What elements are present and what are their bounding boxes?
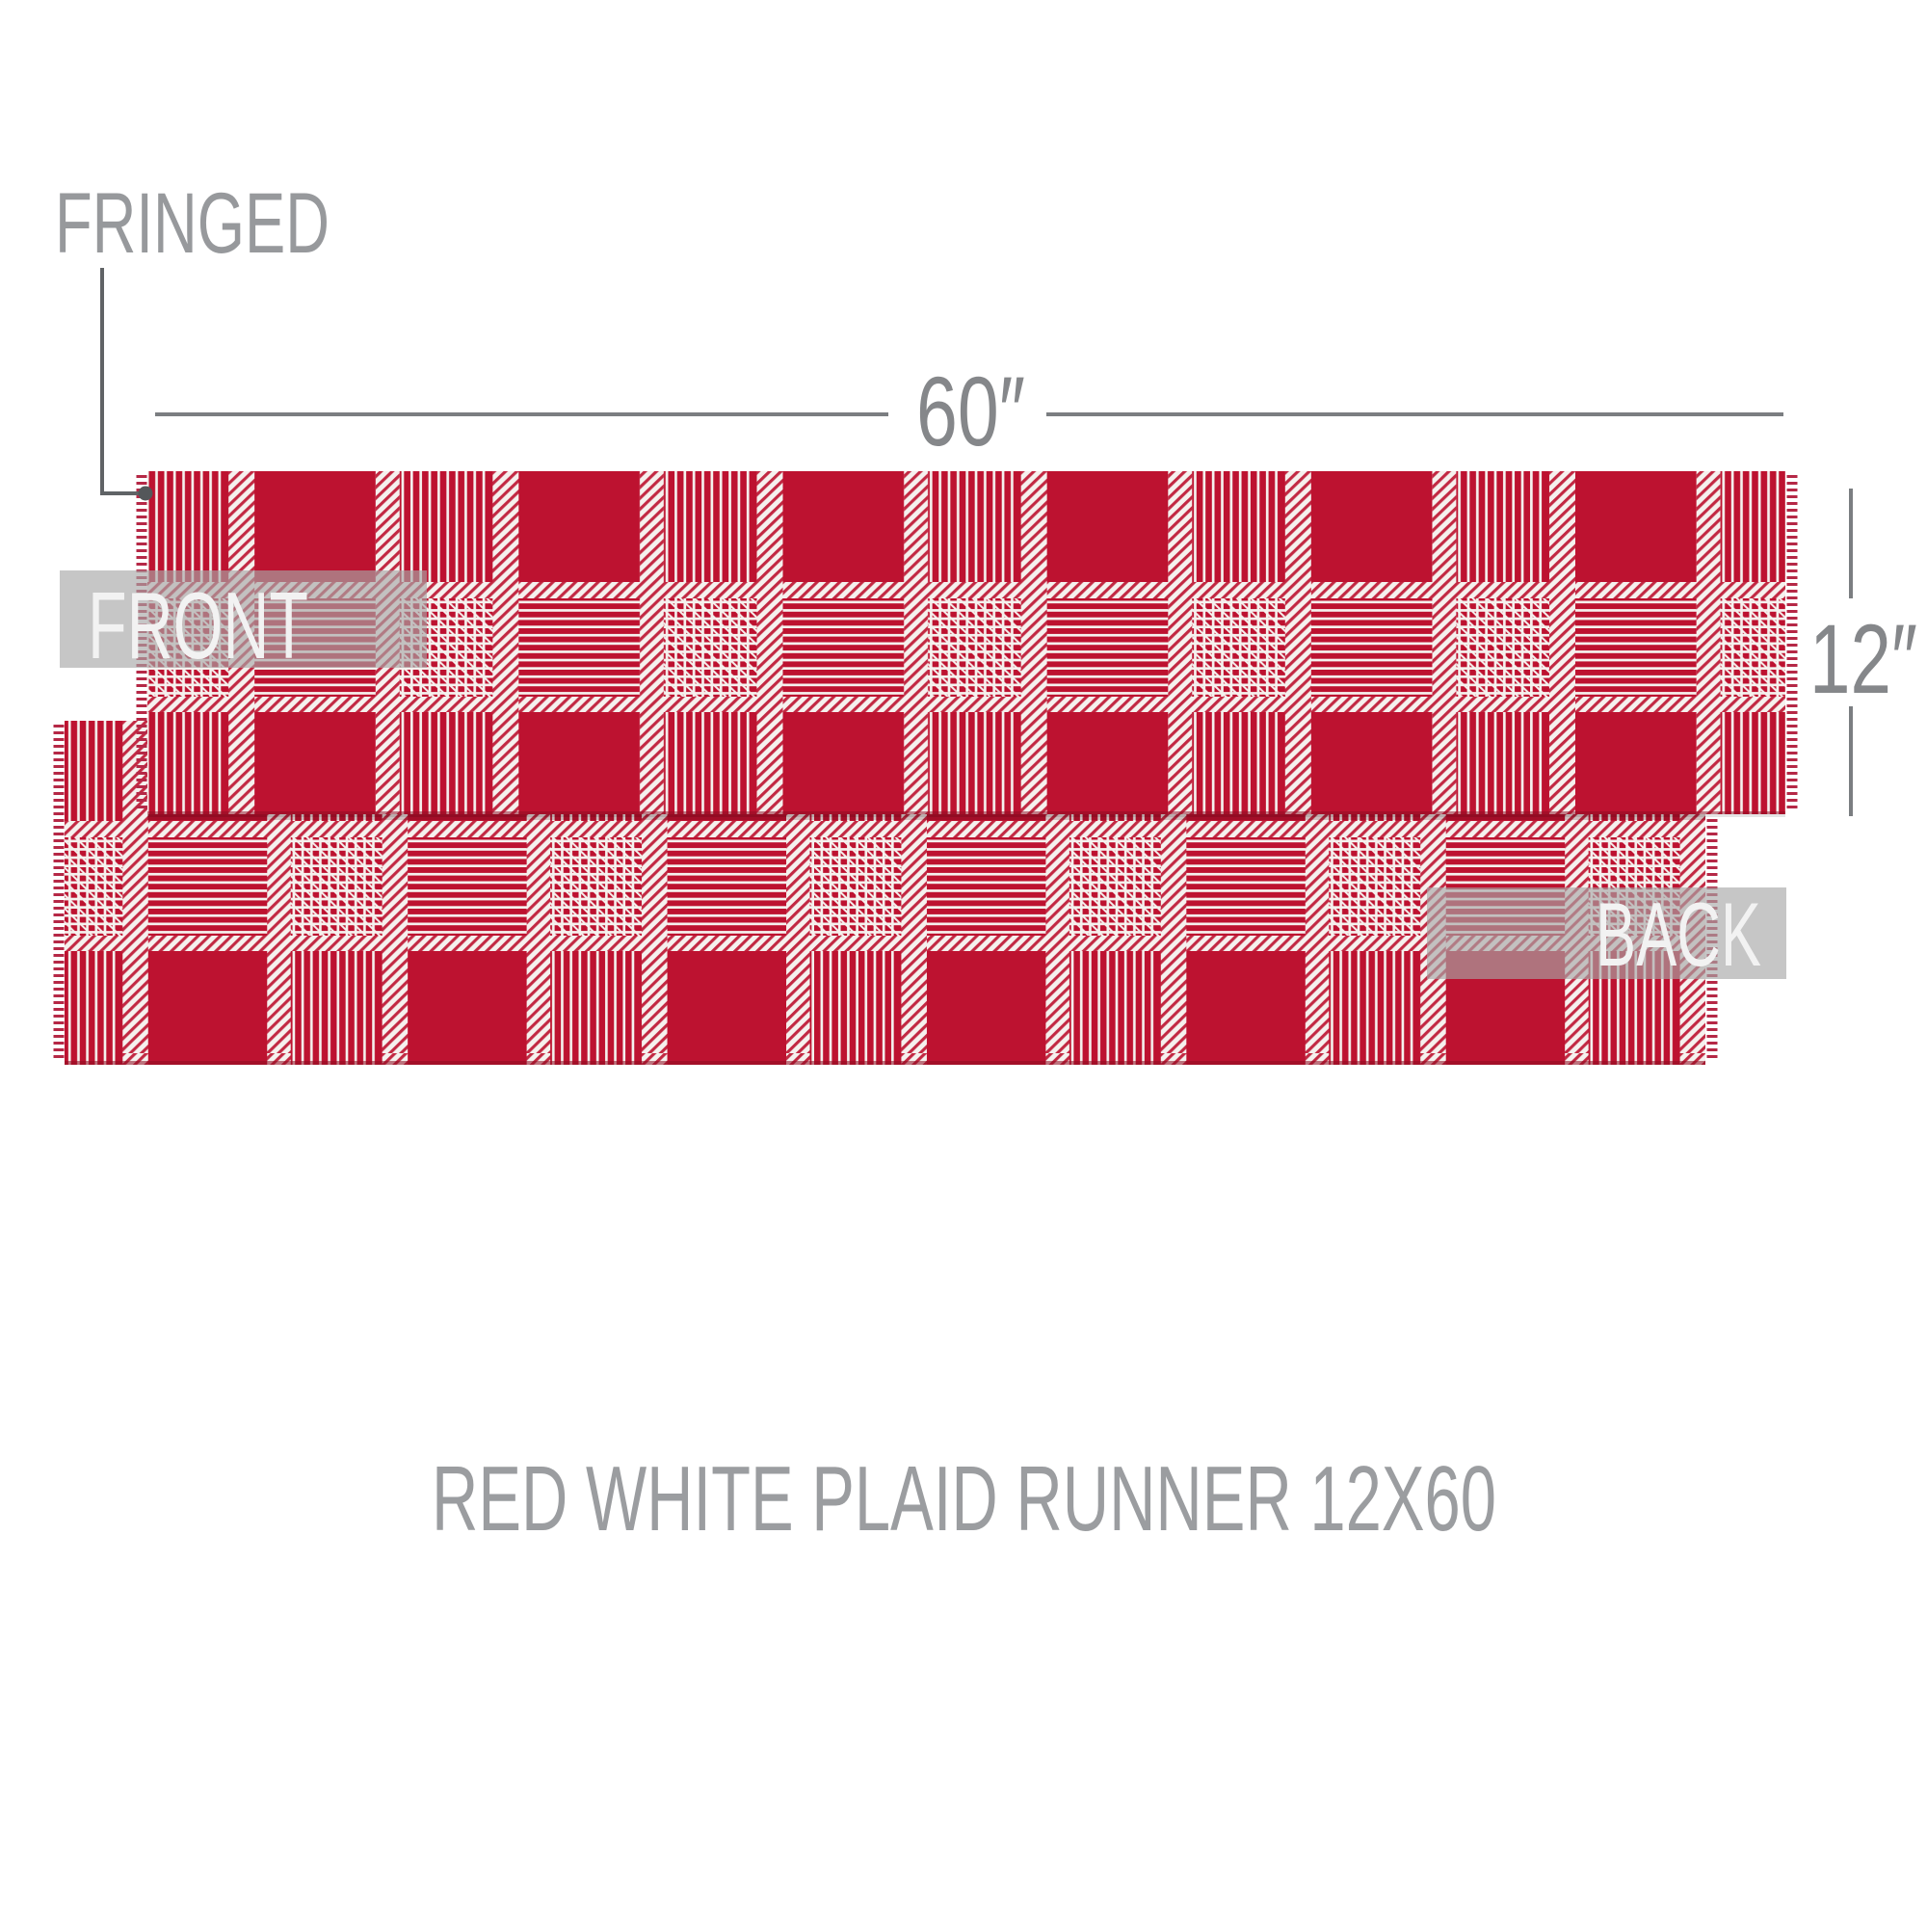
- svg-text:12″: 12″: [1809, 604, 1917, 714]
- svg-text:FRINGED: FRINGED: [55, 174, 330, 271]
- svg-text:RED WHITE PLAID RUNNER 12X60: RED WHITE PLAID RUNNER 12X60: [432, 1447, 1496, 1550]
- svg-text:BACK: BACK: [1596, 884, 1761, 985]
- svg-text:FRONT: FRONT: [88, 572, 308, 678]
- svg-text:60″: 60″: [916, 357, 1025, 466]
